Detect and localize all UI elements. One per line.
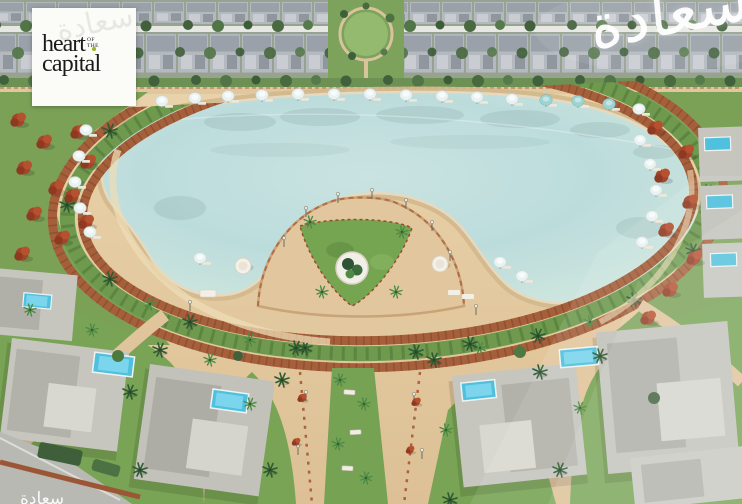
- logo-box: سعادة heart of the capital: [32, 8, 136, 106]
- logo-word-bottom: capital: [42, 54, 100, 76]
- logo-accent-dot: [92, 47, 96, 51]
- arabic-watermark-fragment: سعادة: [20, 489, 64, 504]
- pocket-park: [328, 0, 404, 84]
- villa: [129, 363, 275, 504]
- villa: [0, 268, 78, 341]
- aerial-render: سعادة heart of the capital سعادة سعادة: [0, 0, 742, 504]
- logo: heart of the capital: [42, 35, 100, 75]
- pool: [704, 137, 730, 151]
